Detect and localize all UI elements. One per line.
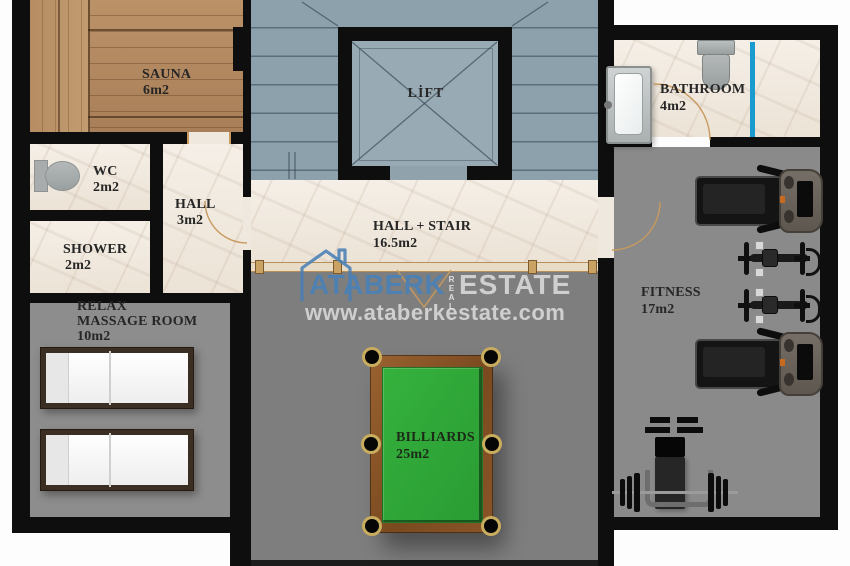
bathroom-top-wall [614,25,838,40]
wc-toilet-icon [45,161,80,191]
wc-label: WC [93,165,118,179]
sauna-door-opening [187,132,231,144]
partition-post [255,260,264,274]
massage-table-1 [40,347,194,409]
relax-label-line2: MASSAGE ROOM [77,315,197,329]
relax-top-wall [12,293,251,303]
billiards-label: BILLIARDS [396,431,475,445]
billiards-area: 25m2 [396,448,429,462]
hall-stair-label: HALL + STAIR [373,220,471,234]
wc-shower-wall [30,210,150,221]
shower-cabin [606,66,652,144]
sauna-label: SAUNA [142,68,191,82]
outer-wall-right [820,25,838,530]
fitness-door-opening [598,197,614,258]
billiards-room-bottom-edge [251,560,598,566]
relax-label-line1: RELAX [77,300,127,314]
relax-bottom-wall [12,517,230,533]
massage-table-pillow [46,353,69,403]
lift-cabin-inner-frame [359,48,493,161]
treadmill-2 [695,327,819,399]
stair-treads-right [512,0,598,180]
shower-floor [30,221,150,293]
toilet-icon [697,40,735,55]
hall-door-opening [243,197,251,250]
shower-cabin-hinge [604,101,612,109]
sauna-bench-edge [88,116,243,118]
billiard-pocket [365,519,379,533]
fitness-area: 17m2 [641,303,674,317]
billiard-pocket [364,437,378,451]
partition-post [588,260,597,274]
lift-door [390,166,467,180]
shower-cabin-door [614,73,643,135]
stair-treads-left [251,0,338,180]
bathroom-label: BATHROOM [660,83,745,97]
relax-right-wall [230,293,251,566]
hall-area: 3m2 [177,214,203,228]
shower-label: SHOWER [63,243,127,257]
fitness-bottom-wall [598,517,838,530]
sauna-vertical-divider [58,0,60,132]
billiard-pocket [485,437,499,451]
shower-area: 2m2 [65,259,91,273]
sauna-floor-planks [88,0,243,132]
hall-label: HALL [175,198,215,212]
exercise-bike-2 [735,285,819,327]
fitness-label: FITNESS [641,286,701,300]
relax-area: 10m2 [77,330,110,344]
billiard-pocket [484,350,498,364]
sauna-right-wall [243,0,251,132]
floor-plan: SAUNA 6m2 WC 2m2 HALL 3m2 SHOWER 2m2 REL… [0,0,850,566]
wc-hall-wall [150,144,163,297]
sauna-bench-edge [88,29,243,31]
massage-table-pillow [46,435,69,485]
billiard-felt [382,367,483,523]
hall-east-wall-upper [243,144,251,197]
treadmill-1 [695,164,819,236]
bathroom-bottom-wall-right [710,137,820,147]
watermark-brand-primary: ATABERK [309,271,445,299]
watermark-brand-secondary: ESTATE [459,271,571,299]
lift-label: LİFT [403,87,449,101]
billiard-pocket [484,519,498,533]
wc-area: 2m2 [93,181,119,195]
bench-press [612,413,738,513]
bathroom-area: 4m2 [660,100,686,114]
watermark-url: www.ataberkestate.com [305,302,565,324]
billiard-pocket [365,350,379,364]
massage-table-2 [40,429,194,491]
sauna-area: 6m2 [143,84,169,98]
outer-wall-left [12,0,30,533]
sauna-wall-notch [233,27,243,71]
sauna-floor-vertical-planks [30,0,90,132]
shower-glass-partition [750,42,755,137]
exercise-bike-1 [735,238,819,280]
hall-stair-area: 16.5m2 [373,237,417,251]
